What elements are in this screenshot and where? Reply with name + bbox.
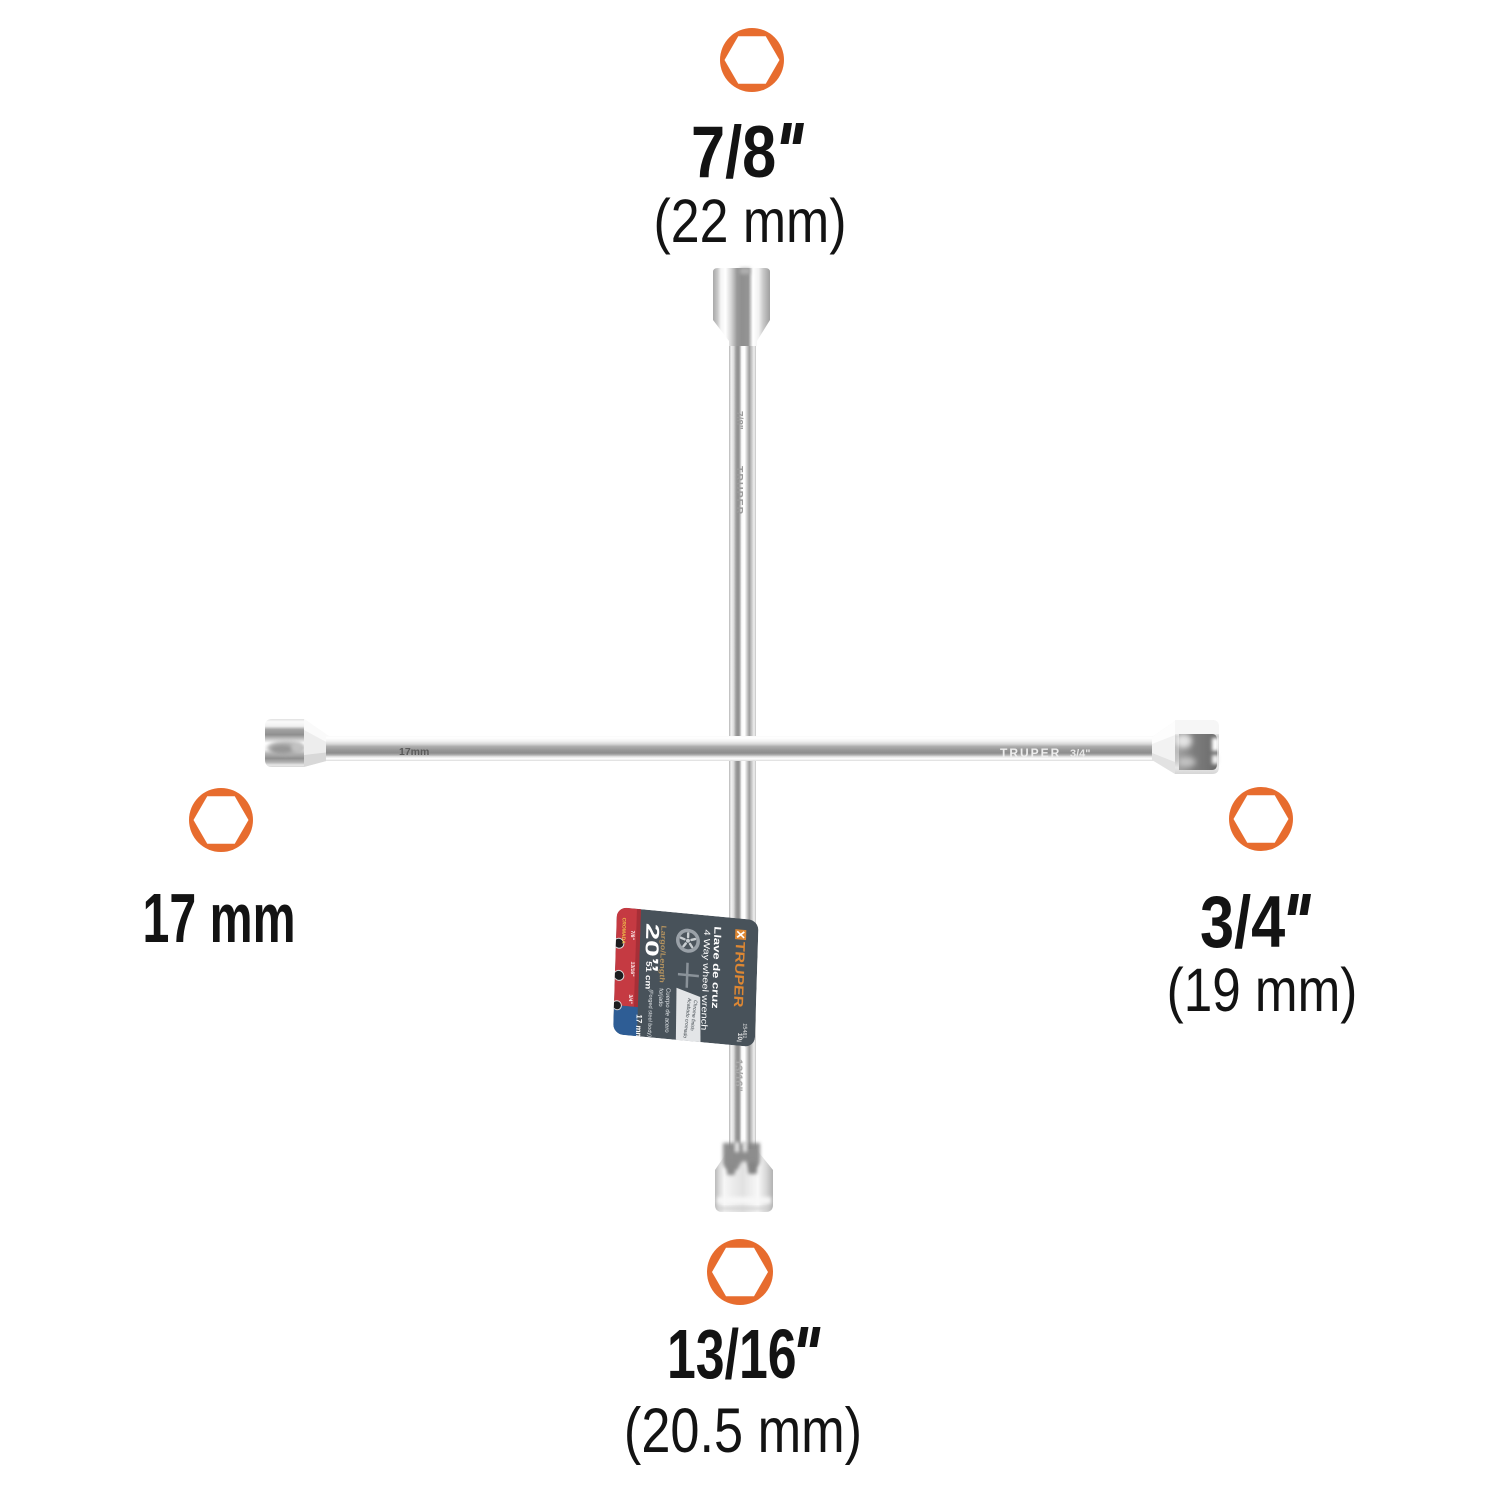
svg-text:CROMADA: CROMADA [620, 917, 627, 944]
svg-text:3/4": 3/4" [627, 994, 633, 1004]
svg-text:3/4: 3/4 [1200, 882, 1286, 963]
svg-text:13/16: 13/16 [667, 1315, 797, 1393]
svg-text:51 cm: 51 cm [644, 961, 654, 990]
svg-text:7/8": 7/8" [733, 411, 744, 430]
svg-text:3/4": 3/4" [1070, 748, 1091, 760]
svg-text:13/16": 13/16" [629, 961, 635, 977]
svg-text:10¡: 10¡ [736, 1032, 743, 1042]
svg-text:TRUPER: TRUPER [1000, 746, 1061, 760]
svg-text:(22 mm): (22 mm) [653, 187, 846, 255]
svg-text:17 mm: 17 mm [142, 879, 295, 957]
svg-text:forjado: forjado [657, 988, 664, 1008]
svg-text:17mm: 17mm [399, 746, 429, 758]
svg-text:13/16": 13/16" [732, 1059, 744, 1092]
svg-text:TRUPER: TRUPER [730, 941, 746, 1008]
svg-text:7/8": 7/8" [629, 930, 635, 940]
svg-text:17 mm: 17 mm [634, 1014, 644, 1040]
svg-text:(19 mm): (19 mm) [1167, 956, 1358, 1024]
svg-text:(20.5 mm): (20.5 mm) [624, 1397, 862, 1467]
svg-text:7/8: 7/8 [691, 112, 776, 193]
svg-text:TRUPER: TRUPER [733, 466, 745, 515]
